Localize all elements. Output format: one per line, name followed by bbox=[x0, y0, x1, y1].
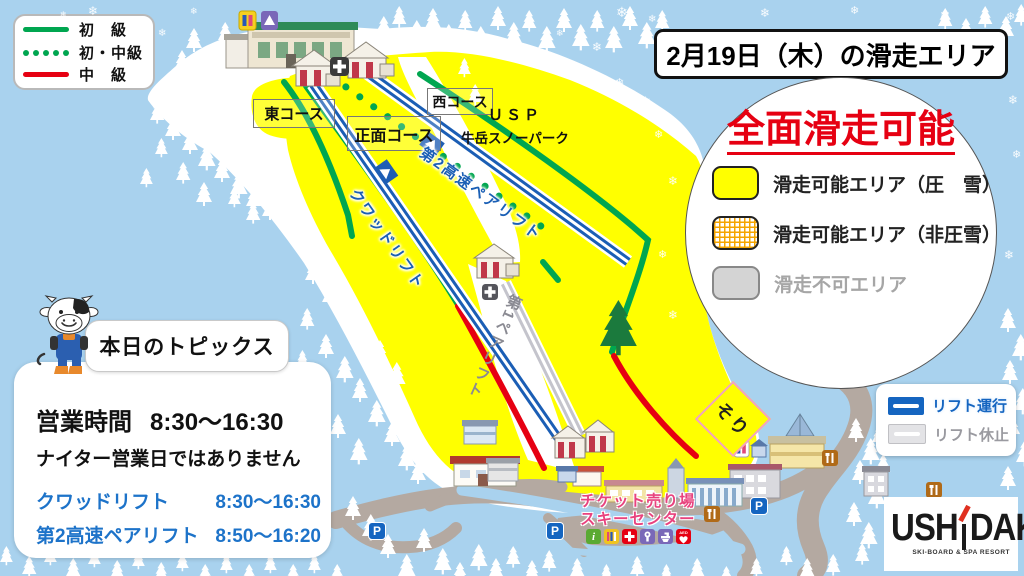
night-ski-note: ナイター営業日ではありません bbox=[36, 444, 321, 471]
legend-row-beginner-intermediate: 初・中級 bbox=[15, 42, 153, 63]
pine-tree bbox=[66, 558, 80, 576]
pine-tree bbox=[330, 564, 344, 576]
page-title: 2月19日（木）の滑走エリア bbox=[666, 36, 995, 73]
ticket-office-label: チケット売り場 スキーセンター bbox=[580, 493, 696, 529]
pine-tree bbox=[186, 28, 202, 52]
restroom-icon bbox=[239, 11, 256, 30]
topics-title-pill: 本日のトピックス bbox=[85, 320, 289, 372]
lift-hours-row: 第2高速ペアリフト8:50～16:20 bbox=[36, 521, 321, 548]
pine-tree bbox=[452, 562, 468, 576]
first-aid-icon bbox=[482, 284, 498, 300]
legend-row-intermediate: 中 級 bbox=[15, 64, 153, 85]
pine-tree bbox=[1000, 308, 1016, 332]
pine-tree bbox=[826, 554, 840, 576]
lift-stopped-swatch bbox=[888, 424, 926, 444]
pine-tree bbox=[352, 378, 368, 402]
course-legend: 初 級 初・中級 中 級 bbox=[13, 14, 155, 90]
pine-tree bbox=[572, 24, 590, 50]
parking-icon: P bbox=[750, 497, 768, 515]
pine-tree bbox=[350, 438, 368, 464]
restaurant-icon bbox=[704, 506, 720, 522]
facility-icons: i AED bbox=[586, 529, 691, 544]
pine-tree bbox=[524, 560, 540, 576]
status-row-groomed: 滑走可能エリア（圧 雪） bbox=[712, 166, 996, 200]
pine-tree bbox=[720, 566, 733, 576]
pine-tree bbox=[506, 546, 520, 568]
resort-logo-subtitle: SKI-BOARD & SPA RESORT bbox=[912, 549, 1010, 556]
lift-running-row: リフト運行 bbox=[876, 395, 1016, 416]
pine-tree bbox=[622, 6, 638, 30]
lift-stopped-row: リフト休止 bbox=[876, 424, 1016, 445]
lift-hours-list: クワッドリフト8:30～16:30 第2高速ペアリフト8:50～16:20 bbox=[36, 487, 321, 548]
pine-tree bbox=[570, 558, 584, 576]
rest-house-icon bbox=[261, 11, 278, 30]
restaurant-icon bbox=[926, 482, 942, 498]
intermediate-line-swatch bbox=[23, 72, 69, 77]
pine-tree bbox=[140, 168, 153, 187]
pine-tree bbox=[690, 558, 704, 576]
status-row-closed: 滑走不可エリア bbox=[712, 266, 907, 300]
pine-tree bbox=[1000, 466, 1016, 490]
course-label-east: 東コース bbox=[253, 99, 335, 128]
closed-area-swatch bbox=[712, 266, 760, 300]
restaurant-icon bbox=[822, 450, 838, 466]
pine-tree bbox=[336, 356, 354, 382]
ski-area-status-panel: 全面滑走可能 滑走可能エリア（圧 雪） 滑走可能エリア（非圧雪） 滑走不可エリア bbox=[685, 77, 997, 389]
pine-tree bbox=[242, 564, 256, 576]
rental-building bbox=[462, 420, 498, 444]
pine-tree bbox=[490, 6, 506, 30]
pine-tree bbox=[392, 6, 406, 28]
ski-trail-map: P P P 東コース 正面コース 西コース ＵＳＰ 牛岳スノーパーク 第2高速ペ… bbox=[0, 0, 1024, 576]
pine-tree bbox=[330, 414, 346, 438]
pine-tree bbox=[780, 546, 793, 565]
pine-tree bbox=[0, 546, 13, 565]
hut-building bbox=[556, 466, 578, 482]
beginner-intermediate-line-swatch bbox=[23, 50, 69, 55]
pine-tree bbox=[660, 564, 673, 576]
pine-tree bbox=[286, 564, 300, 576]
first-aid-icon bbox=[330, 57, 349, 76]
lift-hours-row: クワッドリフト8:30～16:30 bbox=[36, 487, 321, 514]
pine-tree bbox=[938, 8, 952, 30]
pine-tree bbox=[605, 26, 623, 52]
groomed-area-swatch bbox=[712, 166, 759, 200]
pine-tree bbox=[398, 554, 416, 576]
parking-icon: P bbox=[546, 522, 564, 540]
pine-tree bbox=[846, 502, 862, 526]
pine-tree bbox=[978, 6, 992, 28]
info-icon: i bbox=[586, 529, 601, 544]
pine-tree bbox=[300, 308, 314, 330]
ungroomed-area-swatch bbox=[712, 216, 759, 250]
pine-tree bbox=[556, 8, 572, 32]
pine-tree bbox=[434, 548, 452, 574]
pine-tree bbox=[855, 543, 869, 565]
pine-tree bbox=[590, 10, 604, 32]
pine-tree bbox=[1014, 4, 1024, 26]
date-title-banner: 2月19日（木）の滑走エリア bbox=[654, 29, 1008, 79]
snow-park-label: ＵＳＰ 牛岳スノーパーク bbox=[458, 104, 572, 147]
resort-logo: USH DAKE SKI-BOARD & SPA RESORT bbox=[884, 497, 1018, 571]
pine-tree bbox=[154, 562, 168, 576]
pine-tree bbox=[470, 544, 488, 570]
shop-building bbox=[486, 458, 520, 481]
legend-row-beginner: 初 級 bbox=[15, 19, 153, 40]
pine-tree bbox=[1012, 334, 1024, 360]
pine-tree bbox=[176, 162, 190, 184]
daily-topics-panel: 営業時間8:30～16:30 ナイター営業日ではありません クワッドリフト8:3… bbox=[14, 362, 331, 558]
status-headline: 全面滑走可能 bbox=[686, 98, 996, 153]
lift-running-swatch bbox=[888, 397, 924, 415]
business-hours: 営業時間8:30～16:30 bbox=[36, 402, 321, 437]
pine-tree bbox=[458, 10, 472, 32]
coin-locker-icon bbox=[640, 529, 655, 544]
parking-icon: P bbox=[368, 522, 386, 540]
pine-tree bbox=[155, 138, 168, 157]
pine-tree bbox=[600, 564, 613, 576]
pine-tree bbox=[318, 334, 334, 358]
rental-icon bbox=[604, 529, 619, 544]
pine-tree bbox=[638, 22, 656, 48]
pine-tree bbox=[196, 182, 212, 206]
pine-tree bbox=[488, 558, 504, 576]
aed-icon: AED bbox=[676, 529, 691, 544]
pine-tree bbox=[542, 550, 556, 572]
resort-logo-wordmark: USH DAKE bbox=[891, 511, 1024, 549]
annex-building bbox=[862, 466, 890, 496]
pine-tree bbox=[198, 564, 212, 576]
pine-tree bbox=[522, 10, 536, 32]
pine-tree bbox=[22, 556, 36, 576]
pine-tree bbox=[110, 560, 124, 576]
pine-tree bbox=[1016, 440, 1024, 466]
cow-mascot bbox=[34, 292, 104, 378]
status-row-ungroomed: 滑走可能エリア（非圧雪） bbox=[712, 216, 996, 250]
spa-building bbox=[768, 414, 826, 468]
first-aid-icon bbox=[622, 529, 637, 544]
lift-status-legend: リフト運行 リフト休止 bbox=[876, 384, 1016, 456]
pine-tree bbox=[1002, 360, 1018, 384]
logo-stylized-i bbox=[959, 513, 969, 549]
washroom-icon bbox=[658, 529, 673, 544]
beginner-line-swatch bbox=[23, 27, 69, 32]
